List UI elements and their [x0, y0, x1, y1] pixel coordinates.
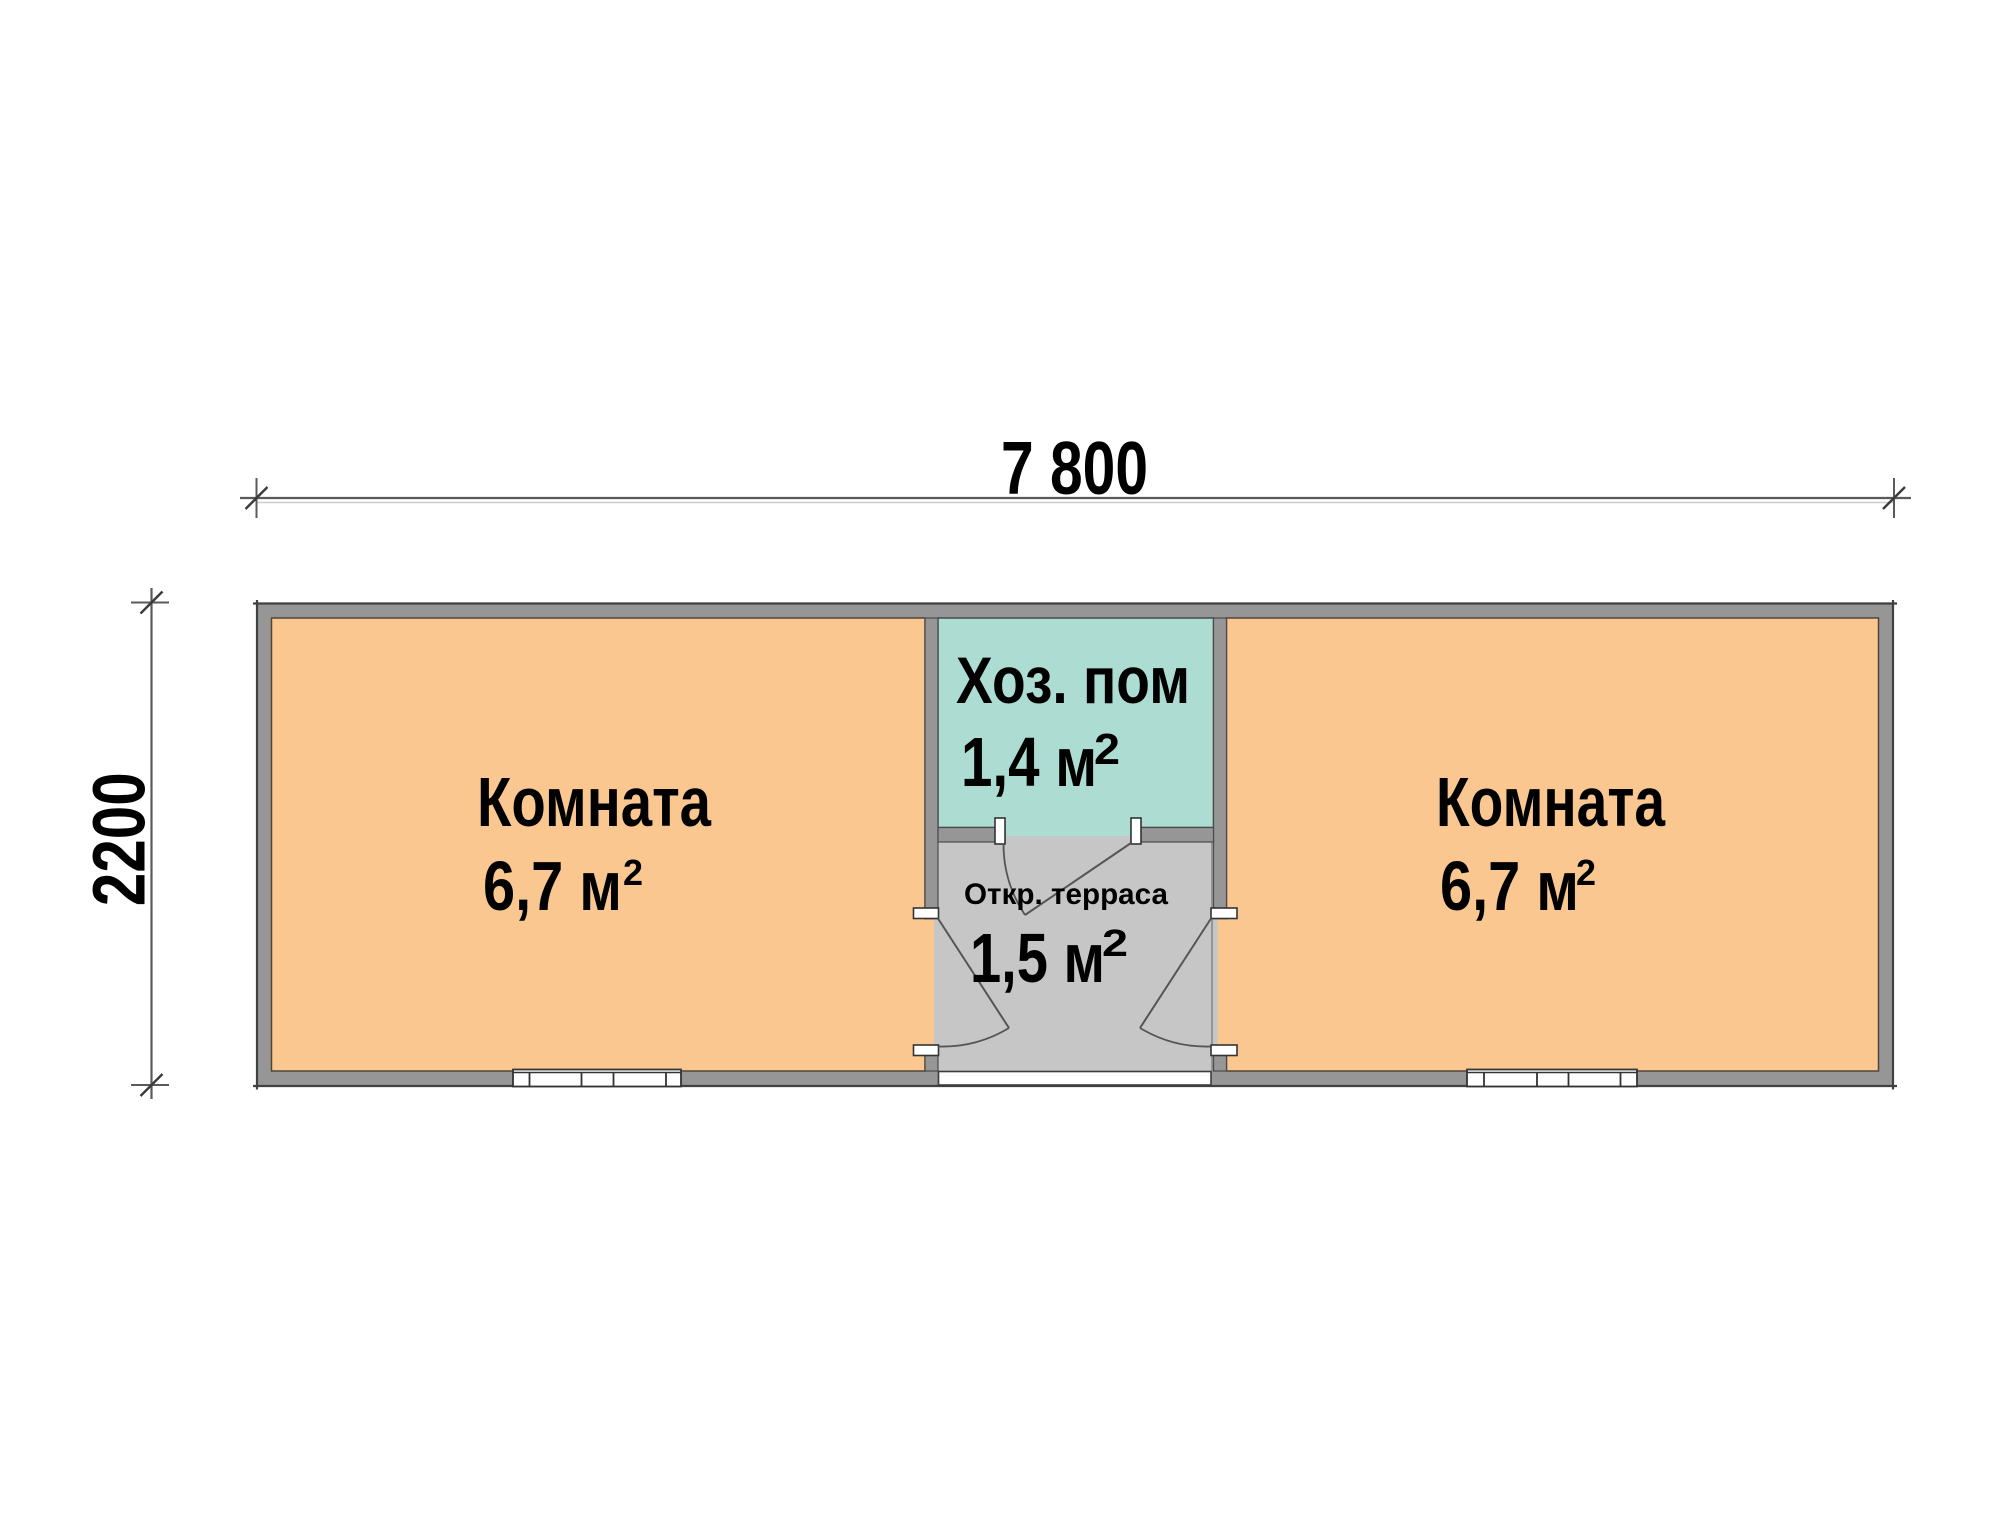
- svg-text:Откр. терраса: Откр. терраса: [964, 878, 1168, 911]
- svg-text:2: 2: [623, 852, 643, 893]
- svg-text:2: 2: [1576, 852, 1596, 893]
- svg-text:6,7 м: 6,7 м: [1440, 847, 1579, 925]
- svg-text:Хоз. пом: Хоз. пом: [956, 643, 1190, 717]
- svg-text:2: 2: [1094, 725, 1120, 774]
- svg-text:1,4 м: 1,4 м: [961, 723, 1097, 801]
- svg-text:Комната: Комната: [477, 763, 712, 841]
- svg-text:2200: 2200: [78, 772, 161, 906]
- svg-text:Комната: Комната: [1436, 763, 1666, 841]
- svg-text:7 800: 7 800: [1001, 426, 1148, 510]
- svg-text:1,5 м: 1,5 м: [970, 919, 1105, 997]
- svg-text:6,7 м: 6,7 м: [483, 847, 622, 925]
- svg-text:2: 2: [1102, 923, 1128, 965]
